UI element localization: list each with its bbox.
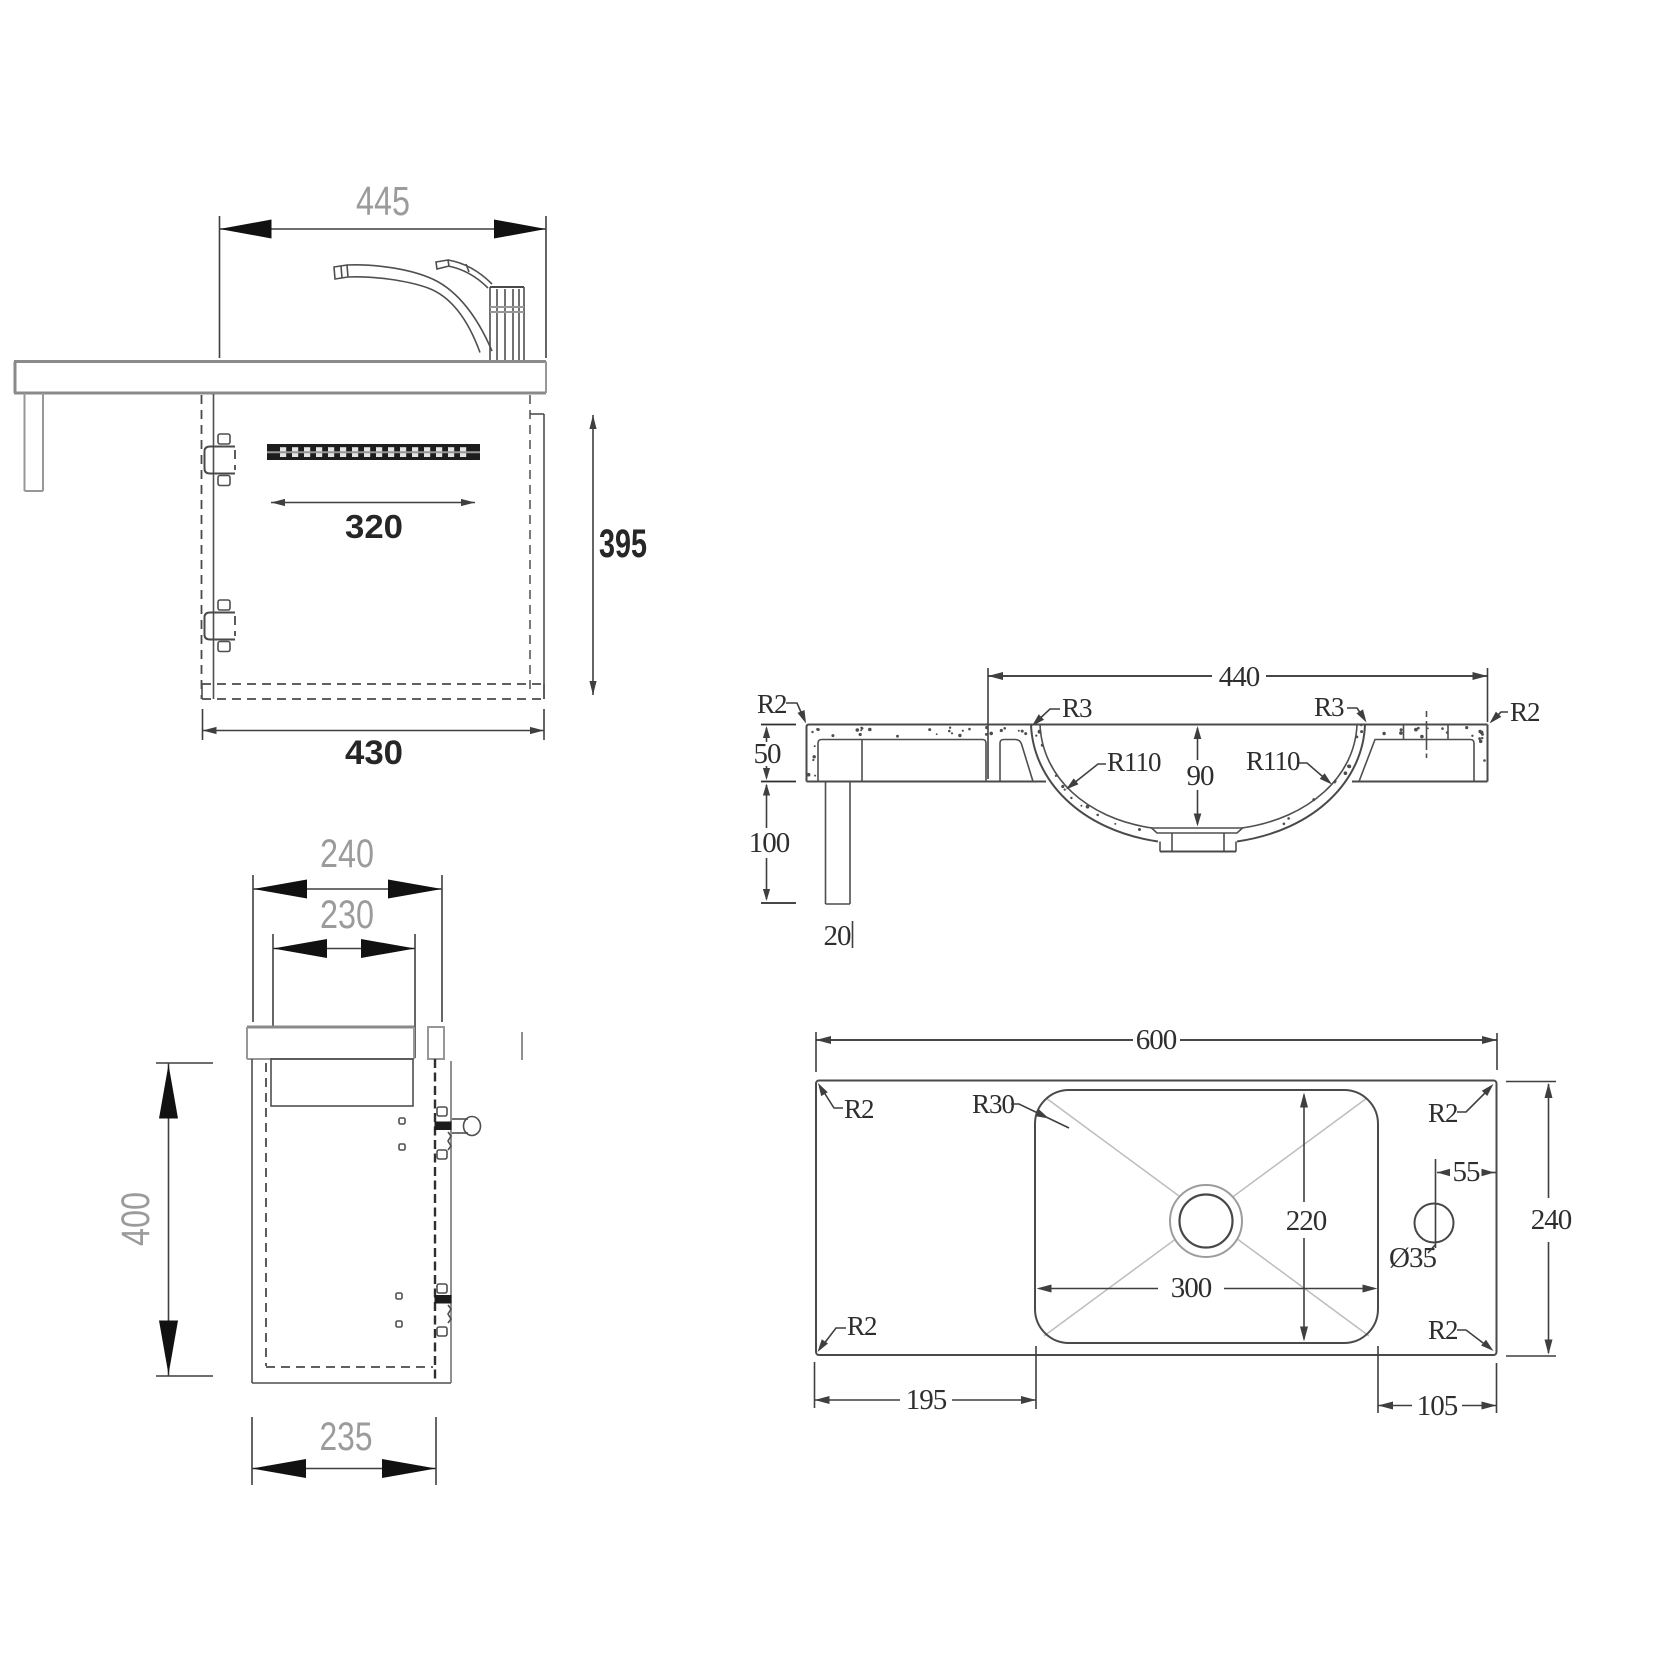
svg-text:R2: R2: [1428, 1098, 1458, 1128]
svg-text:R3: R3: [1314, 692, 1344, 722]
svg-text:230: 230: [320, 893, 374, 937]
svg-text:90: 90: [1187, 760, 1215, 792]
svg-text:R2: R2: [844, 1094, 874, 1124]
svg-text:R2: R2: [1428, 1315, 1458, 1345]
svg-text:440: 440: [1219, 661, 1260, 693]
svg-text:Ø35: Ø35: [1389, 1242, 1436, 1274]
svg-text:R30: R30: [972, 1089, 1015, 1119]
svg-text:220: 220: [1286, 1205, 1327, 1237]
svg-text:R2: R2: [847, 1311, 877, 1341]
svg-text:195: 195: [906, 1384, 947, 1416]
svg-text:400: 400: [114, 1192, 158, 1246]
svg-text:50: 50: [754, 738, 782, 770]
svg-text:240: 240: [1531, 1204, 1572, 1236]
svg-text:320: 320: [345, 508, 403, 545]
svg-text:R110: R110: [1107, 747, 1161, 777]
svg-text:R2: R2: [757, 689, 787, 719]
svg-text:100: 100: [749, 827, 790, 859]
svg-text:R2: R2: [1510, 697, 1540, 727]
svg-text:R3: R3: [1062, 693, 1092, 723]
svg-text:395: 395: [599, 522, 647, 566]
svg-text:R110: R110: [1246, 746, 1300, 776]
svg-text:430: 430: [345, 734, 403, 772]
svg-text:300: 300: [1171, 1272, 1212, 1304]
svg-text:105: 105: [1417, 1390, 1458, 1422]
svg-text:445: 445: [356, 178, 410, 224]
svg-text:20: 20: [824, 920, 852, 952]
svg-text:55: 55: [1453, 1156, 1481, 1188]
svg-text:600: 600: [1136, 1024, 1177, 1056]
svg-text:235: 235: [320, 1415, 373, 1459]
svg-text:240: 240: [320, 832, 374, 876]
